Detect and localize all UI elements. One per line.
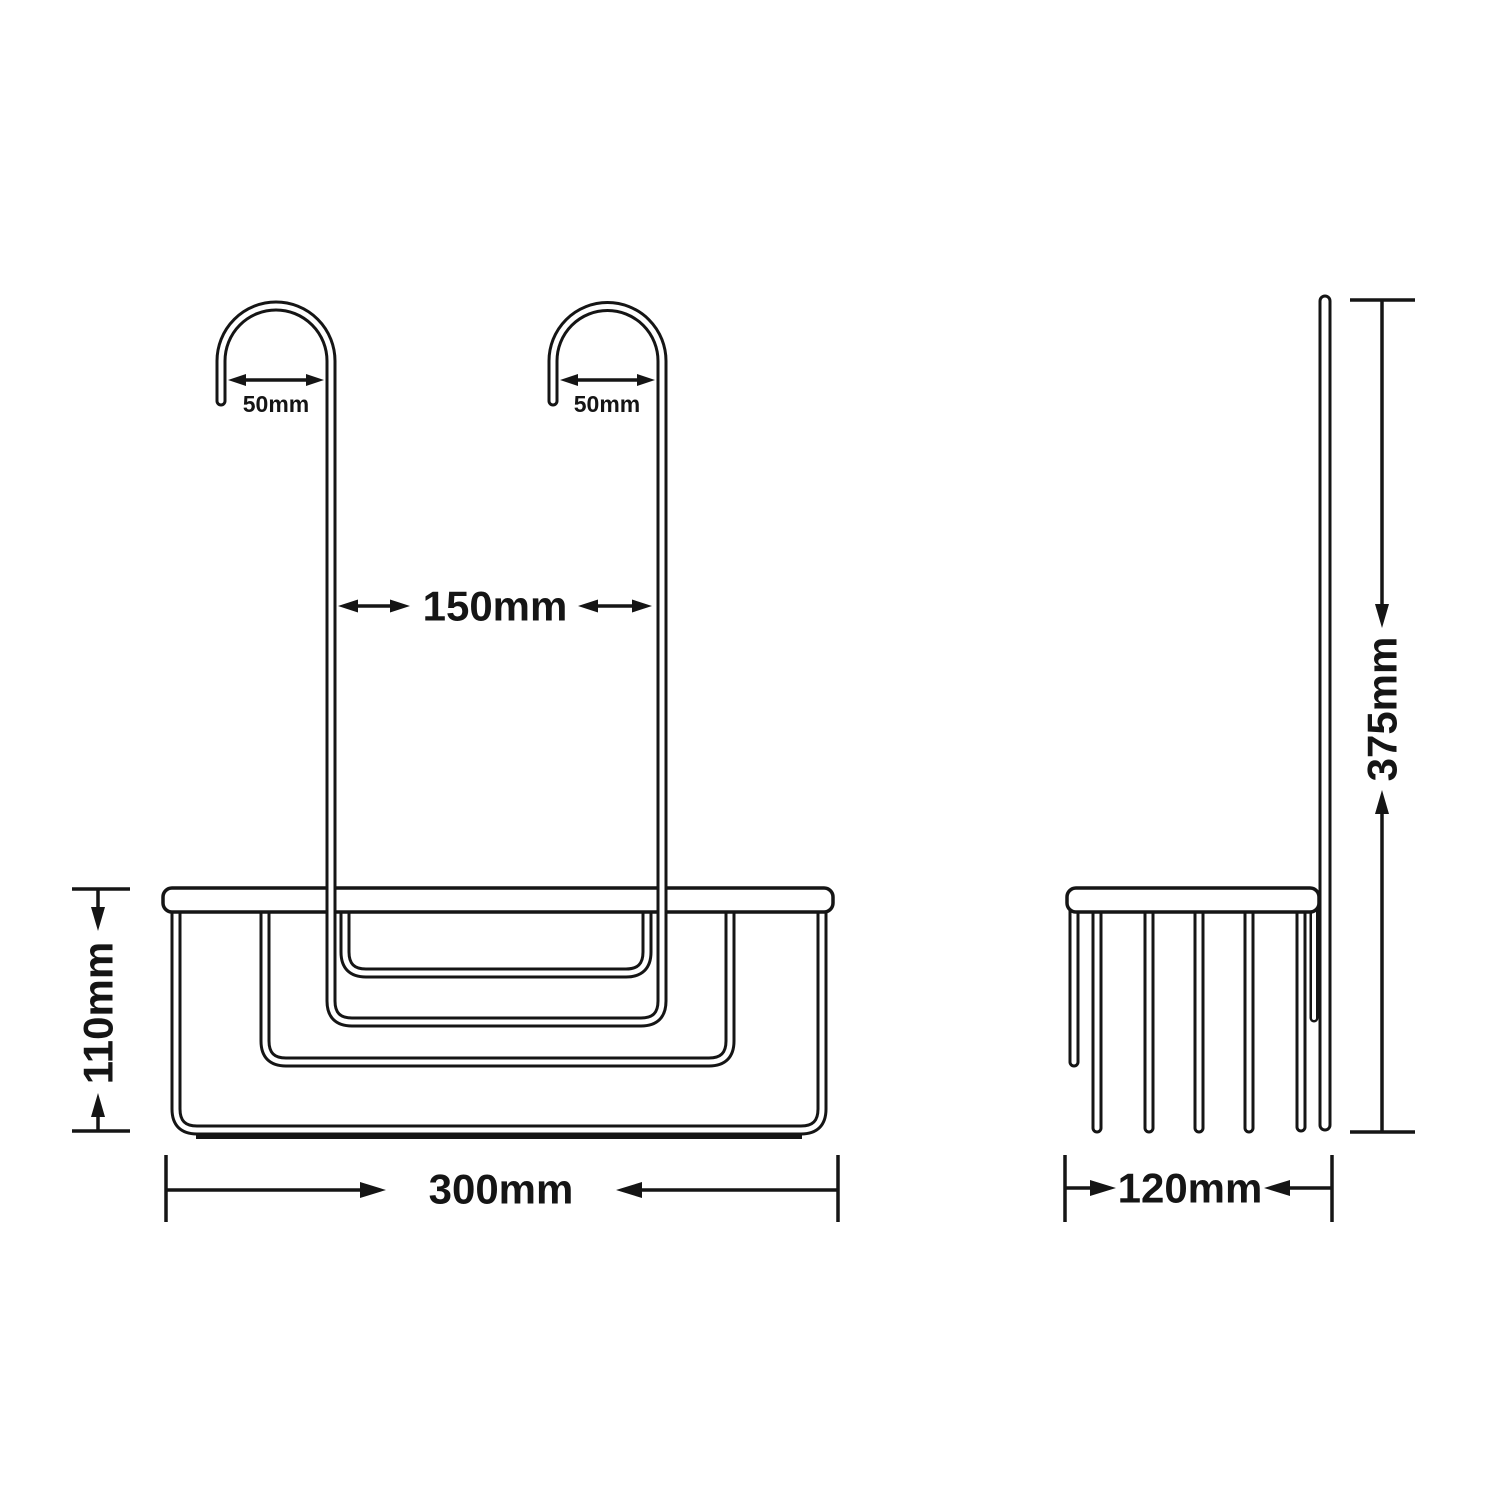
arrowhead-left xyxy=(228,374,246,386)
arrowhead-right xyxy=(632,600,652,613)
arrowhead-left xyxy=(616,1182,642,1198)
basket-height-label: 110mm xyxy=(75,942,122,1084)
dimension-basket-height: 110mm xyxy=(72,889,130,1131)
hook2-width-label: 50mm xyxy=(574,391,640,417)
hook-spacing-label: 150mm xyxy=(423,583,568,630)
arrowhead-down xyxy=(91,907,105,931)
arrowhead-up xyxy=(1375,790,1389,814)
arrowhead-right xyxy=(1090,1180,1116,1196)
arrowhead-left xyxy=(1264,1180,1290,1196)
overall-height-label: 375mm xyxy=(1359,637,1406,782)
technical-drawing-canvas: 50mm 50mm 150mm 110mm xyxy=(0,0,1500,1500)
front-view: 50mm 50mm 150mm 110mm xyxy=(72,306,838,1222)
arrowhead-right xyxy=(360,1182,386,1198)
arrowhead-up xyxy=(91,1093,105,1117)
basket-depth-label: 120mm xyxy=(1118,1165,1263,1212)
dimension-hook-spacing: 150mm xyxy=(338,583,652,630)
arrowhead-right xyxy=(637,374,655,386)
side-basket-wires xyxy=(1074,895,1314,1128)
dimension-hook2-width: 50mm xyxy=(560,374,655,417)
basket-rim-front xyxy=(163,888,833,912)
arrowhead-left xyxy=(560,374,578,386)
arrowhead-right xyxy=(306,374,324,386)
dimension-basket-width: 300mm xyxy=(166,1155,838,1222)
dimension-hook1-width: 50mm xyxy=(228,374,324,417)
dimension-overall-height: 375mm xyxy=(1350,300,1415,1132)
arrowhead-right xyxy=(390,600,410,613)
basket-width-label: 300mm xyxy=(429,1166,574,1213)
basket-rim-side xyxy=(1067,888,1319,912)
dimension-basket-depth: 120mm xyxy=(1065,1155,1332,1222)
arrowhead-down xyxy=(1375,604,1389,628)
drawing-page: 50mm 50mm 150mm 110mm xyxy=(0,0,1500,1500)
hook1-width-label: 50mm xyxy=(243,391,309,417)
side-view: 375mm 120mm xyxy=(1065,300,1415,1222)
arrowhead-left xyxy=(578,600,598,613)
arrowhead-left xyxy=(338,600,358,613)
